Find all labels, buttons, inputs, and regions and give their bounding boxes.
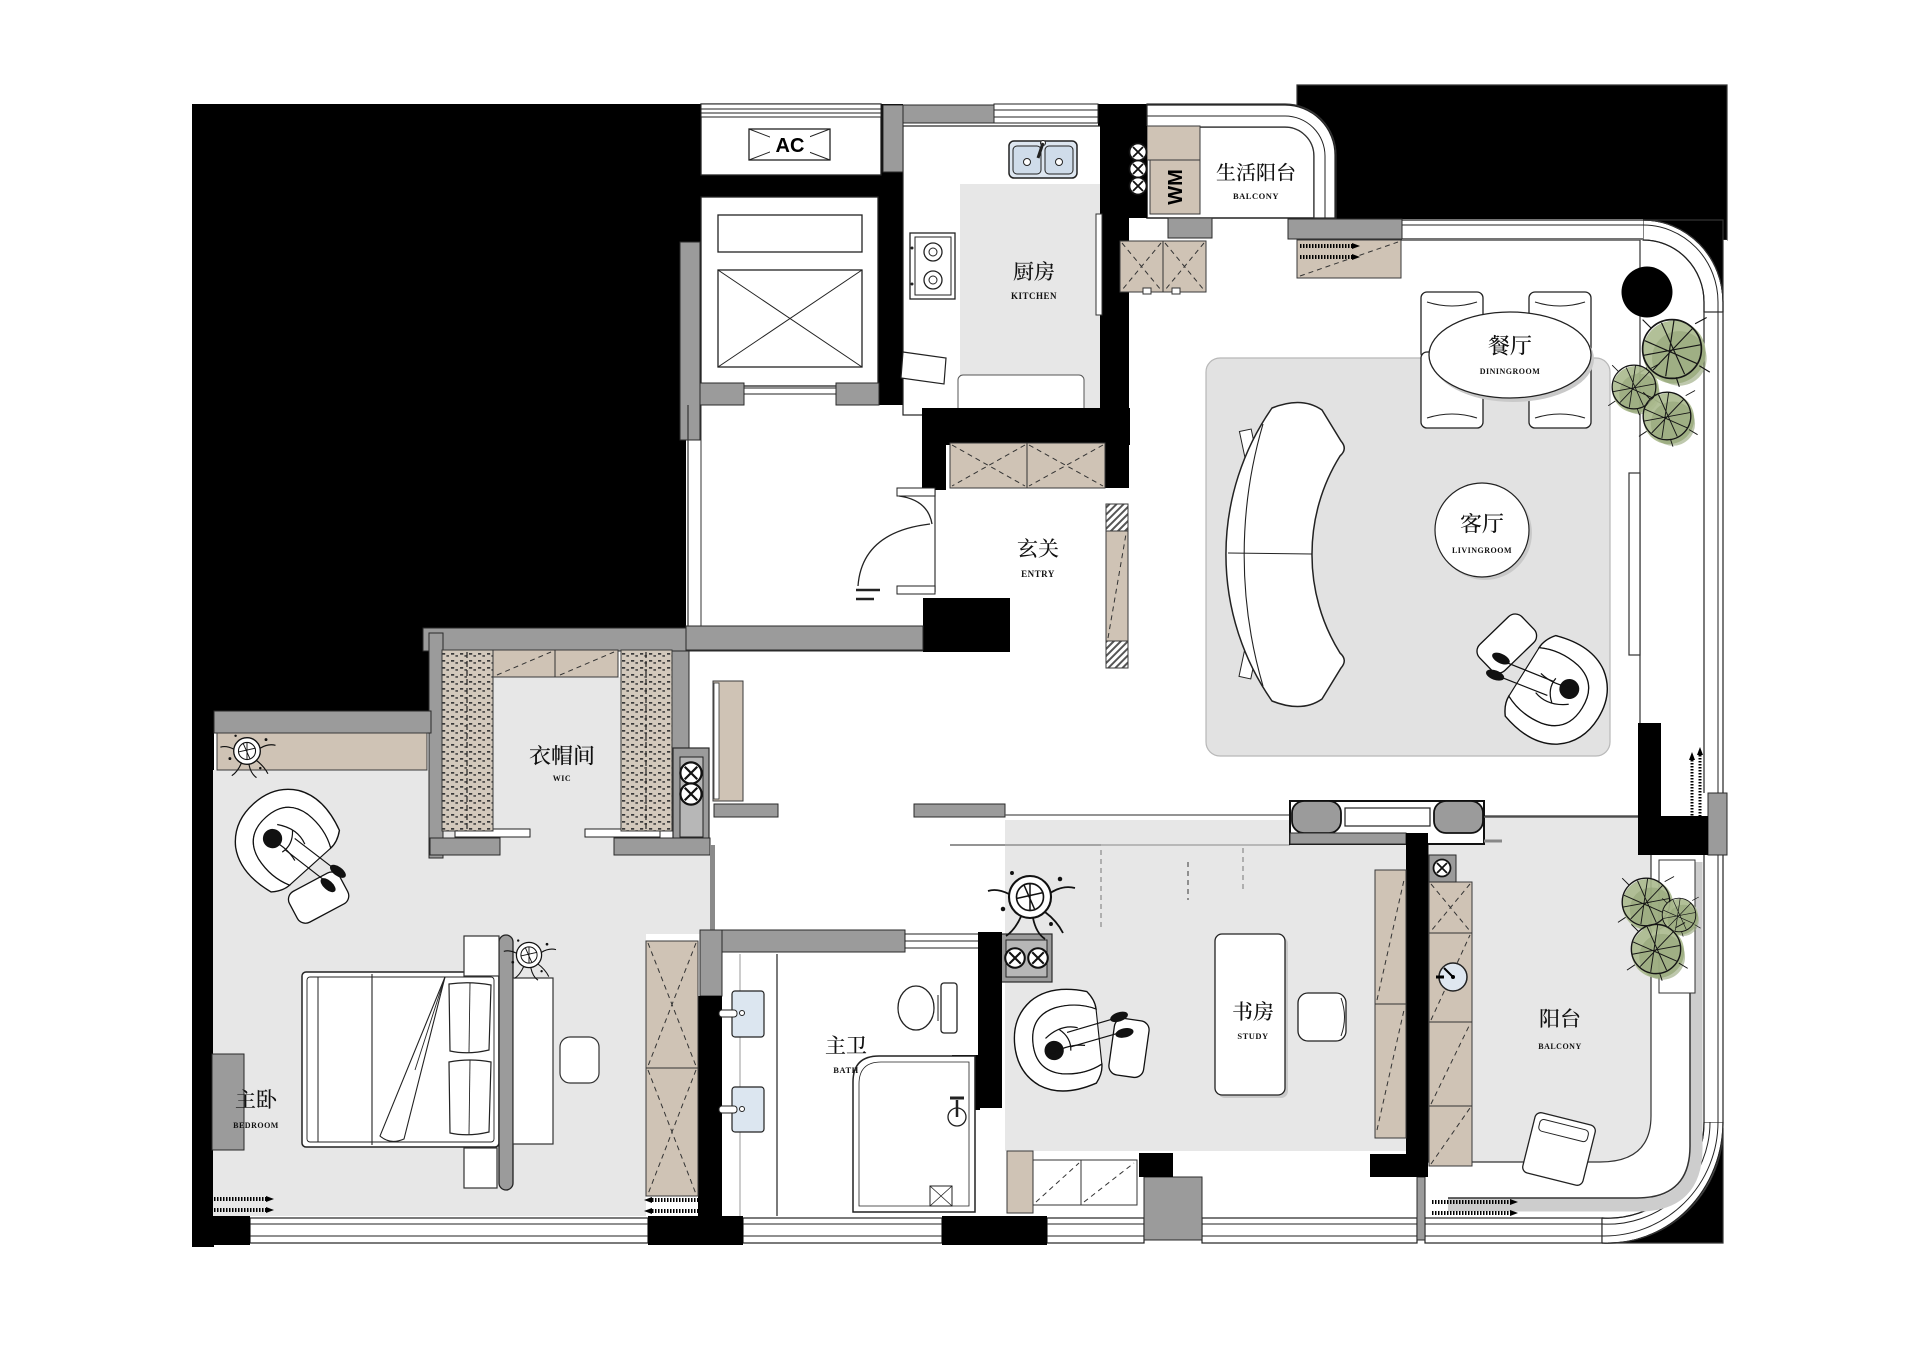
svg-text:BALCONY: BALCONY	[1538, 1042, 1582, 1051]
svg-text:STUDY: STUDY	[1237, 1031, 1268, 1041]
svg-text:BATH: BATH	[833, 1065, 858, 1075]
svg-text:BALCONY: BALCONY	[1233, 191, 1279, 201]
svg-text:LIVINGROOM: LIVINGROOM	[1452, 546, 1512, 555]
svg-text:AC: AC	[776, 135, 805, 157]
svg-text:DININGROOM: DININGROOM	[1480, 367, 1541, 376]
svg-text:WM: WM	[1165, 169, 1187, 205]
svg-text:KITCHEN: KITCHEN	[1011, 291, 1057, 301]
svg-text:ENTRY: ENTRY	[1021, 569, 1055, 579]
svg-text:WIC: WIC	[553, 774, 571, 783]
svg-text:BEDROOM: BEDROOM	[233, 1121, 279, 1130]
